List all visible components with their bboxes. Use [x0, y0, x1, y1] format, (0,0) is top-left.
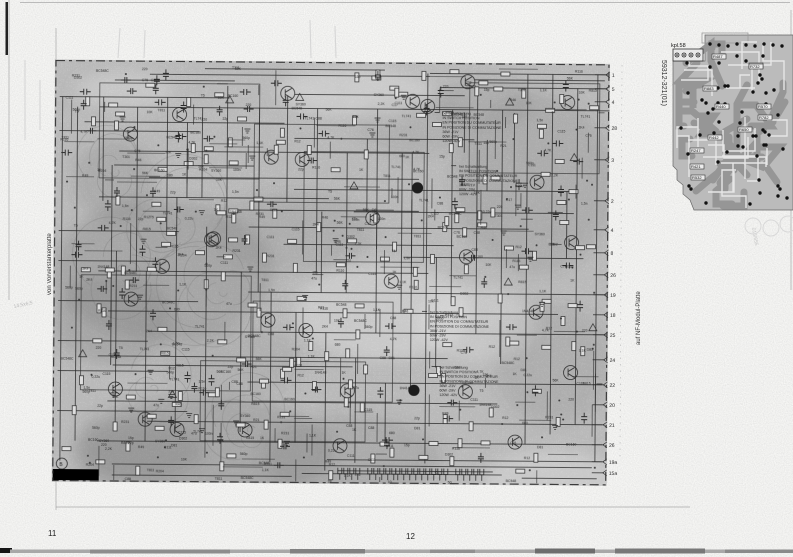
svg-text:0,22u: 0,22u	[483, 210, 492, 214]
svg-text:1N4148: 1N4148	[230, 210, 242, 214]
svg-text:C88: C88	[346, 424, 352, 428]
svg-text:T811: T811	[261, 278, 269, 282]
svg-text:560p: 560p	[240, 452, 248, 456]
svg-text:2,2K: 2,2K	[355, 242, 363, 246]
svg-text:D302: D302	[445, 453, 453, 457]
svg-text:R116: R116	[565, 265, 573, 269]
svg-text:C88: C88	[316, 117, 322, 121]
svg-text:bei Schaltstellung: bei Schaltstellung	[430, 310, 458, 314]
svg-text:T811: T811	[215, 477, 223, 481]
svg-text:8: 8	[610, 251, 613, 257]
svg-text:60W -29V: 60W -29V	[430, 333, 447, 337]
svg-text:R116: R116	[512, 259, 520, 263]
svg-text:T301: T301	[122, 155, 130, 159]
svg-text:T811: T811	[474, 142, 482, 146]
svg-text:1,5n: 1,5n	[268, 288, 275, 292]
svg-text:220: 220	[246, 103, 252, 107]
svg-text:R49: R49	[138, 445, 144, 449]
svg-text:C115: C115	[389, 119, 397, 123]
svg-text:BC548: BC548	[447, 175, 458, 179]
svg-text:BC548C: BC548C	[124, 271, 137, 275]
svg-text:120W -42V: 120W -42V	[439, 393, 458, 397]
svg-text:R12: R12	[226, 215, 232, 219]
svg-text:1,1K: 1,1K	[540, 88, 548, 92]
svg-text:BC548: BC548	[292, 106, 303, 110]
svg-text:22p: 22p	[170, 190, 176, 194]
svg-text:C88: C88	[268, 332, 274, 336]
svg-text:C111: C111	[295, 363, 303, 367]
svg-text:R231: R231	[281, 431, 289, 435]
svg-text:BC160: BC160	[472, 255, 483, 259]
svg-text:220: 220	[443, 85, 449, 89]
svg-text:47u: 47u	[509, 265, 515, 269]
svg-text:R46: R46	[481, 226, 487, 230]
svg-text:24: 24	[610, 358, 616, 364]
svg-text:47u: 47u	[191, 432, 197, 436]
svg-text:47u: 47u	[353, 386, 359, 390]
svg-text:BC548: BC548	[259, 461, 270, 465]
svg-text:56K: 56K	[142, 171, 149, 175]
svg-text:auf NF-Modul-Platte: auf NF-Modul-Platte	[636, 291, 642, 345]
svg-text:R204: R204	[292, 347, 300, 351]
svg-text:BC160: BC160	[284, 397, 295, 401]
svg-text:C17: C17	[365, 222, 371, 226]
svg-text:SY360: SY360	[374, 93, 384, 97]
svg-text:BC548: BC548	[506, 479, 517, 483]
svg-text:BC160: BC160	[190, 131, 201, 135]
svg-text:C115: C115	[178, 430, 186, 434]
svg-text:SY360: SY360	[211, 169, 221, 173]
svg-text:R116: R116	[457, 349, 465, 353]
svg-text:R116: R116	[575, 70, 583, 74]
svg-text:120W -42V: 120W -42V	[430, 338, 449, 342]
svg-text:R231: R231	[232, 249, 240, 253]
svg-text:TL741: TL741	[581, 115, 591, 119]
svg-text:BC548: BC548	[385, 124, 396, 128]
svg-text:kpl.58: kpl.58	[671, 43, 686, 49]
svg-text:1,1K: 1,1K	[579, 349, 587, 353]
svg-text:BC160: BC160	[88, 438, 99, 442]
svg-text:bei Schaltstellung: bei Schaltstellung	[459, 165, 487, 169]
svg-text:R231: R231	[72, 74, 80, 78]
svg-text:SY360: SY360	[240, 414, 250, 418]
svg-text:R815: R815	[589, 89, 597, 93]
svg-text:220: 220	[345, 259, 351, 263]
svg-text:T5: T5	[119, 346, 123, 350]
svg-text:R12: R12	[298, 373, 304, 377]
svg-text:22p: 22p	[223, 117, 229, 121]
svg-text:220: 220	[568, 398, 574, 402]
svg-text:R46: R46	[135, 158, 141, 162]
svg-text:36W -21V: 36W -21V	[459, 183, 476, 187]
svg-text:R49: R49	[442, 412, 448, 416]
svg-text:T5: T5	[391, 249, 395, 253]
svg-text:11: 11	[48, 529, 57, 538]
svg-text:C115: C115	[109, 353, 117, 357]
svg-text:1,1K: 1,1K	[308, 354, 316, 358]
svg-text:R116: R116	[98, 309, 106, 313]
svg-text:1,1K: 1,1K	[309, 434, 317, 438]
svg-text:15p: 15p	[404, 443, 410, 447]
svg-text:BC548C: BC548C	[241, 476, 254, 480]
svg-text:1,1K: 1,1K	[304, 338, 312, 342]
svg-text:D302: D302	[347, 235, 355, 239]
svg-text:1N4148: 1N4148	[479, 403, 491, 407]
svg-text:4,7K: 4,7K	[413, 167, 421, 171]
svg-text:4: 4	[612, 100, 615, 106]
svg-text:100n: 100n	[378, 217, 386, 221]
svg-text:BC548C: BC548C	[96, 69, 109, 73]
svg-text:1,5n: 1,5n	[232, 190, 239, 194]
svg-text:4,7K: 4,7K	[327, 136, 335, 140]
svg-text:10K: 10K	[218, 439, 225, 443]
svg-text:BC548C: BC548C	[502, 361, 515, 365]
svg-text:R12: R12	[489, 345, 495, 349]
svg-text:C76: C76	[134, 149, 140, 153]
svg-text:R815: R815	[582, 382, 590, 386]
svg-text:R815: R815	[251, 402, 259, 406]
svg-text:560p: 560p	[65, 286, 73, 290]
svg-text:T301: T301	[495, 214, 503, 218]
svg-text:T811: T811	[357, 228, 365, 232]
svg-text:56K: 56K	[552, 378, 559, 382]
svg-text:56K: 56K	[256, 357, 263, 361]
svg-text:10K: 10K	[579, 91, 586, 95]
svg-text:3: 3	[611, 158, 614, 164]
svg-text:BC548C: BC548C	[61, 357, 74, 361]
svg-text:C88: C88	[437, 202, 443, 206]
svg-text:10K: 10K	[181, 458, 188, 462]
svg-text:R116: R116	[336, 269, 344, 273]
svg-text:4,7K: 4,7K	[109, 221, 117, 225]
svg-text:36W -21V: 36W -21V	[430, 329, 447, 333]
svg-text:1,1K: 1,1K	[344, 474, 352, 478]
svg-text:T811: T811	[158, 108, 166, 112]
svg-text:120W -42V: 120W -42V	[459, 192, 478, 196]
svg-text:BC160: BC160	[228, 94, 239, 98]
svg-text:T811: T811	[383, 174, 391, 178]
svg-text:R815: R815	[143, 227, 151, 231]
svg-text:0,22u: 0,22u	[328, 449, 337, 453]
svg-text:TL741: TL741	[169, 377, 179, 381]
svg-text:bei Schaltstellung: bei Schaltstellung	[443, 112, 471, 116]
svg-text:C115: C115	[103, 372, 111, 376]
svg-text:22p: 22p	[128, 441, 134, 445]
svg-text:C111: C111	[66, 96, 74, 100]
svg-text:C111: C111	[386, 444, 394, 448]
svg-text:R231: R231	[545, 415, 553, 419]
svg-text:1,5n: 1,5n	[403, 256, 410, 260]
svg-text:TL741: TL741	[391, 165, 401, 169]
svg-text:22p: 22p	[138, 217, 144, 221]
svg-text:SY360: SY360	[296, 102, 306, 106]
svg-text:100n: 100n	[233, 168, 241, 172]
svg-text:R12: R12	[516, 245, 522, 249]
svg-text:100n: 100n	[205, 432, 213, 436]
svg-text:R815: R815	[518, 280, 526, 284]
svg-text:560p: 560p	[242, 136, 250, 140]
svg-text:C17: C17	[506, 198, 512, 202]
svg-text:10K: 10K	[485, 263, 492, 267]
svg-text:2,2K: 2,2K	[378, 102, 386, 106]
svg-text:D81: D81	[521, 368, 527, 372]
svg-text:2K4: 2K4	[82, 267, 88, 271]
svg-text:T5: T5	[372, 210, 376, 214]
svg-text:28: 28	[611, 126, 617, 132]
svg-text:R12: R12	[514, 357, 520, 361]
svg-text:56K: 56K	[198, 165, 205, 169]
svg-text:T5: T5	[479, 389, 483, 393]
svg-text:C88: C88	[474, 231, 480, 235]
svg-text:25: 25	[610, 333, 616, 339]
svg-text:C76: C76	[367, 128, 373, 132]
svg-text:10K: 10K	[353, 115, 360, 119]
svg-text:C111: C111	[164, 445, 172, 449]
svg-text:R231: R231	[277, 415, 285, 419]
svg-text:TL741: TL741	[419, 198, 429, 202]
svg-text:R570: R570	[758, 104, 768, 109]
svg-text:R231: R231	[399, 133, 407, 137]
svg-text:0,22u: 0,22u	[524, 373, 533, 377]
svg-text:1,1K: 1,1K	[256, 141, 264, 145]
svg-text:22p: 22p	[414, 416, 420, 420]
svg-text:1N4148: 1N4148	[522, 309, 534, 313]
svg-text:2K4: 2K4	[322, 325, 328, 329]
svg-text:2K4: 2K4	[428, 214, 434, 218]
svg-text:BC160: BC160	[154, 168, 165, 172]
svg-text:2K4: 2K4	[146, 329, 152, 333]
svg-text:SY360: SY360	[99, 439, 109, 443]
svg-text:2: 2	[611, 199, 614, 205]
svg-text:D81: D81	[389, 356, 395, 360]
svg-text:C115: C115	[151, 78, 159, 82]
svg-text:R116: R116	[452, 447, 460, 451]
svg-text:22p: 22p	[298, 167, 304, 171]
svg-text:2,2K: 2,2K	[105, 447, 113, 451]
svg-text:BC548C: BC548C	[449, 212, 462, 216]
svg-text:22p: 22p	[97, 404, 103, 408]
svg-text:56K: 56K	[337, 221, 344, 225]
svg-text:von Vorverstärkerplatte: von Vorverstärkerplatte	[47, 233, 53, 295]
svg-text:1,1K: 1,1K	[373, 308, 381, 312]
svg-text:56K: 56K	[217, 370, 224, 374]
svg-text:18: 18	[610, 313, 616, 319]
svg-text:220: 220	[96, 346, 102, 350]
svg-text:R21: R21	[500, 144, 506, 148]
svg-text:10K: 10K	[147, 110, 154, 114]
svg-text:R21: R21	[253, 418, 259, 422]
svg-text:1,1K: 1,1K	[399, 280, 407, 284]
svg-text:R21: R21	[251, 365, 257, 369]
svg-text:220: 220	[466, 81, 472, 85]
svg-text:15p: 15p	[312, 271, 318, 275]
svg-text:60W -29V: 60W -29V	[439, 389, 456, 393]
svg-text:560p: 560p	[167, 370, 175, 374]
svg-text:2,2K: 2,2K	[551, 173, 559, 177]
svg-text:R204: R204	[98, 169, 106, 173]
svg-text:56K: 56K	[567, 77, 574, 81]
svg-text:R49: R49	[154, 189, 160, 193]
svg-text:10K: 10K	[165, 150, 172, 154]
svg-text:10K: 10K	[235, 67, 242, 71]
svg-text:SY360: SY360	[535, 232, 545, 236]
svg-text:4,7K: 4,7K	[390, 337, 398, 341]
svg-text:R440: R440	[716, 104, 726, 109]
svg-text:R12: R12	[546, 326, 552, 330]
svg-text:1N4148: 1N4148	[315, 371, 327, 375]
svg-text:R116: R116	[171, 244, 179, 248]
svg-text:680: 680	[174, 307, 180, 311]
svg-text:R421: R421	[691, 164, 701, 169]
svg-text:R532: R532	[692, 175, 702, 180]
svg-text:560p: 560p	[82, 390, 90, 394]
svg-text:D302: D302	[179, 436, 187, 440]
svg-text:R815: R815	[246, 436, 254, 440]
svg-text:BC160: BC160	[250, 392, 261, 396]
svg-text:10K: 10K	[218, 96, 225, 100]
svg-text:12: 12	[406, 532, 415, 541]
svg-text:19a: 19a	[609, 460, 618, 466]
svg-text:56K: 56K	[326, 108, 333, 112]
svg-text:C88: C88	[236, 382, 242, 386]
svg-text:C76: C76	[510, 441, 516, 445]
svg-text:1,1K: 1,1K	[179, 282, 187, 286]
svg-text:BC160: BC160	[457, 235, 468, 239]
svg-text:C111: C111	[220, 261, 228, 265]
svg-text:C111: C111	[395, 101, 403, 105]
svg-text:2K4: 2K4	[313, 223, 319, 227]
svg-text:2,2K: 2,2K	[207, 339, 215, 343]
svg-text:R46: R46	[402, 309, 408, 313]
svg-text:59312-321(01): 59312-321(01)	[660, 60, 667, 106]
svg-text:R116: R116	[320, 307, 328, 311]
svg-text:36W -21V: 36W -21V	[442, 130, 459, 134]
svg-text:T5: T5	[75, 110, 79, 114]
svg-text:19: 19	[610, 293, 616, 299]
svg-text:R116: R116	[123, 217, 131, 221]
svg-text:2K4: 2K4	[216, 246, 222, 250]
svg-text:2K4: 2K4	[86, 278, 92, 282]
svg-text:C88: C88	[380, 356, 386, 360]
svg-text:560p: 560p	[365, 325, 373, 329]
svg-text:47u: 47u	[226, 302, 232, 306]
svg-text:60W -29V: 60W -29V	[459, 188, 476, 192]
svg-text:T301: T301	[518, 88, 526, 92]
svg-text:T811: T811	[147, 468, 155, 472]
svg-text:36W -21V: 36W -21V	[439, 384, 456, 388]
svg-text:R12: R12	[502, 416, 508, 420]
svg-text:C88: C88	[390, 316, 396, 320]
svg-text:R12: R12	[524, 456, 530, 460]
svg-text:560p: 560p	[75, 287, 83, 291]
svg-text:C115: C115	[364, 408, 372, 412]
svg-text:BC548: BC548	[172, 342, 183, 346]
svg-text:R116: R116	[198, 387, 206, 391]
svg-text:R231: R231	[121, 420, 129, 424]
svg-text:BC548C: BC548C	[354, 319, 367, 323]
svg-text:TL741: TL741	[305, 116, 315, 120]
svg-text:R782: R782	[759, 115, 769, 120]
svg-text:15p: 15p	[355, 75, 361, 79]
svg-text:TL741: TL741	[195, 325, 205, 329]
svg-text:R204: R204	[156, 469, 164, 473]
svg-text:2K4: 2K4	[578, 126, 584, 130]
svg-text:1,5n: 1,5n	[581, 202, 588, 206]
svg-text:BC548: BC548	[167, 226, 178, 230]
svg-text:D302: D302	[189, 157, 197, 161]
svg-text:SY360: SY360	[155, 439, 165, 443]
svg-text:60W -29V: 60W -29V	[442, 135, 459, 139]
svg-text:D81: D81	[537, 445, 543, 449]
svg-text:560p: 560p	[204, 264, 212, 268]
svg-text:C111: C111	[470, 398, 478, 402]
svg-text:R46: R46	[322, 216, 328, 220]
svg-text:680: 680	[522, 421, 528, 425]
svg-text:4,7K: 4,7K	[80, 130, 88, 134]
svg-text:4,7K: 4,7K	[412, 150, 420, 154]
svg-text:T811: T811	[61, 136, 69, 140]
svg-text:C111: C111	[368, 458, 376, 462]
svg-text:T5: T5	[201, 94, 205, 98]
svg-text:1N4148: 1N4148	[97, 265, 109, 269]
svg-text:680: 680	[399, 154, 405, 158]
svg-text:TL741: TL741	[402, 114, 412, 118]
svg-text:47u: 47u	[352, 217, 358, 221]
svg-text:BC548: BC548	[336, 303, 347, 307]
svg-text:BC548C: BC548C	[162, 300, 175, 304]
svg-text:15p: 15p	[483, 141, 489, 145]
svg-text:680: 680	[167, 173, 173, 177]
svg-text:C88: C88	[472, 248, 478, 252]
svg-text:R12: R12	[144, 215, 150, 219]
svg-text:220: 220	[202, 118, 208, 122]
svg-text:BC160: BC160	[438, 226, 449, 230]
svg-text:15p: 15p	[128, 436, 134, 440]
svg-text:4,7K: 4,7K	[544, 148, 552, 152]
svg-text:D302: D302	[491, 405, 499, 409]
svg-text:0,22u: 0,22u	[91, 375, 100, 379]
svg-text:D81: D81	[587, 348, 593, 352]
svg-text:C111: C111	[528, 163, 536, 167]
svg-text:R12: R12	[329, 463, 335, 467]
svg-text:C76: C76	[142, 78, 148, 82]
svg-text:220: 220	[497, 205, 503, 209]
svg-text:bei Schaltstellung: bei Schaltstellung	[440, 366, 468, 370]
svg-text:1,1K: 1,1K	[262, 468, 270, 472]
svg-text:1,5n: 1,5n	[198, 380, 205, 384]
svg-text:C115: C115	[182, 348, 190, 352]
svg-text:R231: R231	[256, 212, 264, 216]
svg-text:26: 26	[609, 443, 615, 449]
svg-text:T5: T5	[328, 190, 332, 194]
svg-text:1,5n: 1,5n	[122, 204, 129, 208]
svg-text:R116: R116	[409, 285, 417, 289]
svg-text:15a: 15a	[609, 471, 618, 477]
svg-text:R46: R46	[175, 402, 181, 406]
svg-text:120W -42V: 120W -42V	[442, 139, 461, 143]
svg-text:T5: T5	[74, 224, 78, 228]
svg-text:BC160: BC160	[409, 138, 420, 142]
svg-text:R815: R815	[161, 351, 169, 355]
svg-text:C111: C111	[347, 454, 355, 458]
svg-text:R247: R247	[691, 148, 701, 153]
svg-text:R487: R487	[713, 54, 723, 59]
svg-text:10K: 10K	[334, 319, 341, 323]
svg-text:R732: R732	[750, 64, 760, 69]
svg-text:D81: D81	[414, 426, 420, 430]
svg-text:BC160: BC160	[566, 443, 577, 447]
svg-text:22: 22	[609, 383, 615, 389]
